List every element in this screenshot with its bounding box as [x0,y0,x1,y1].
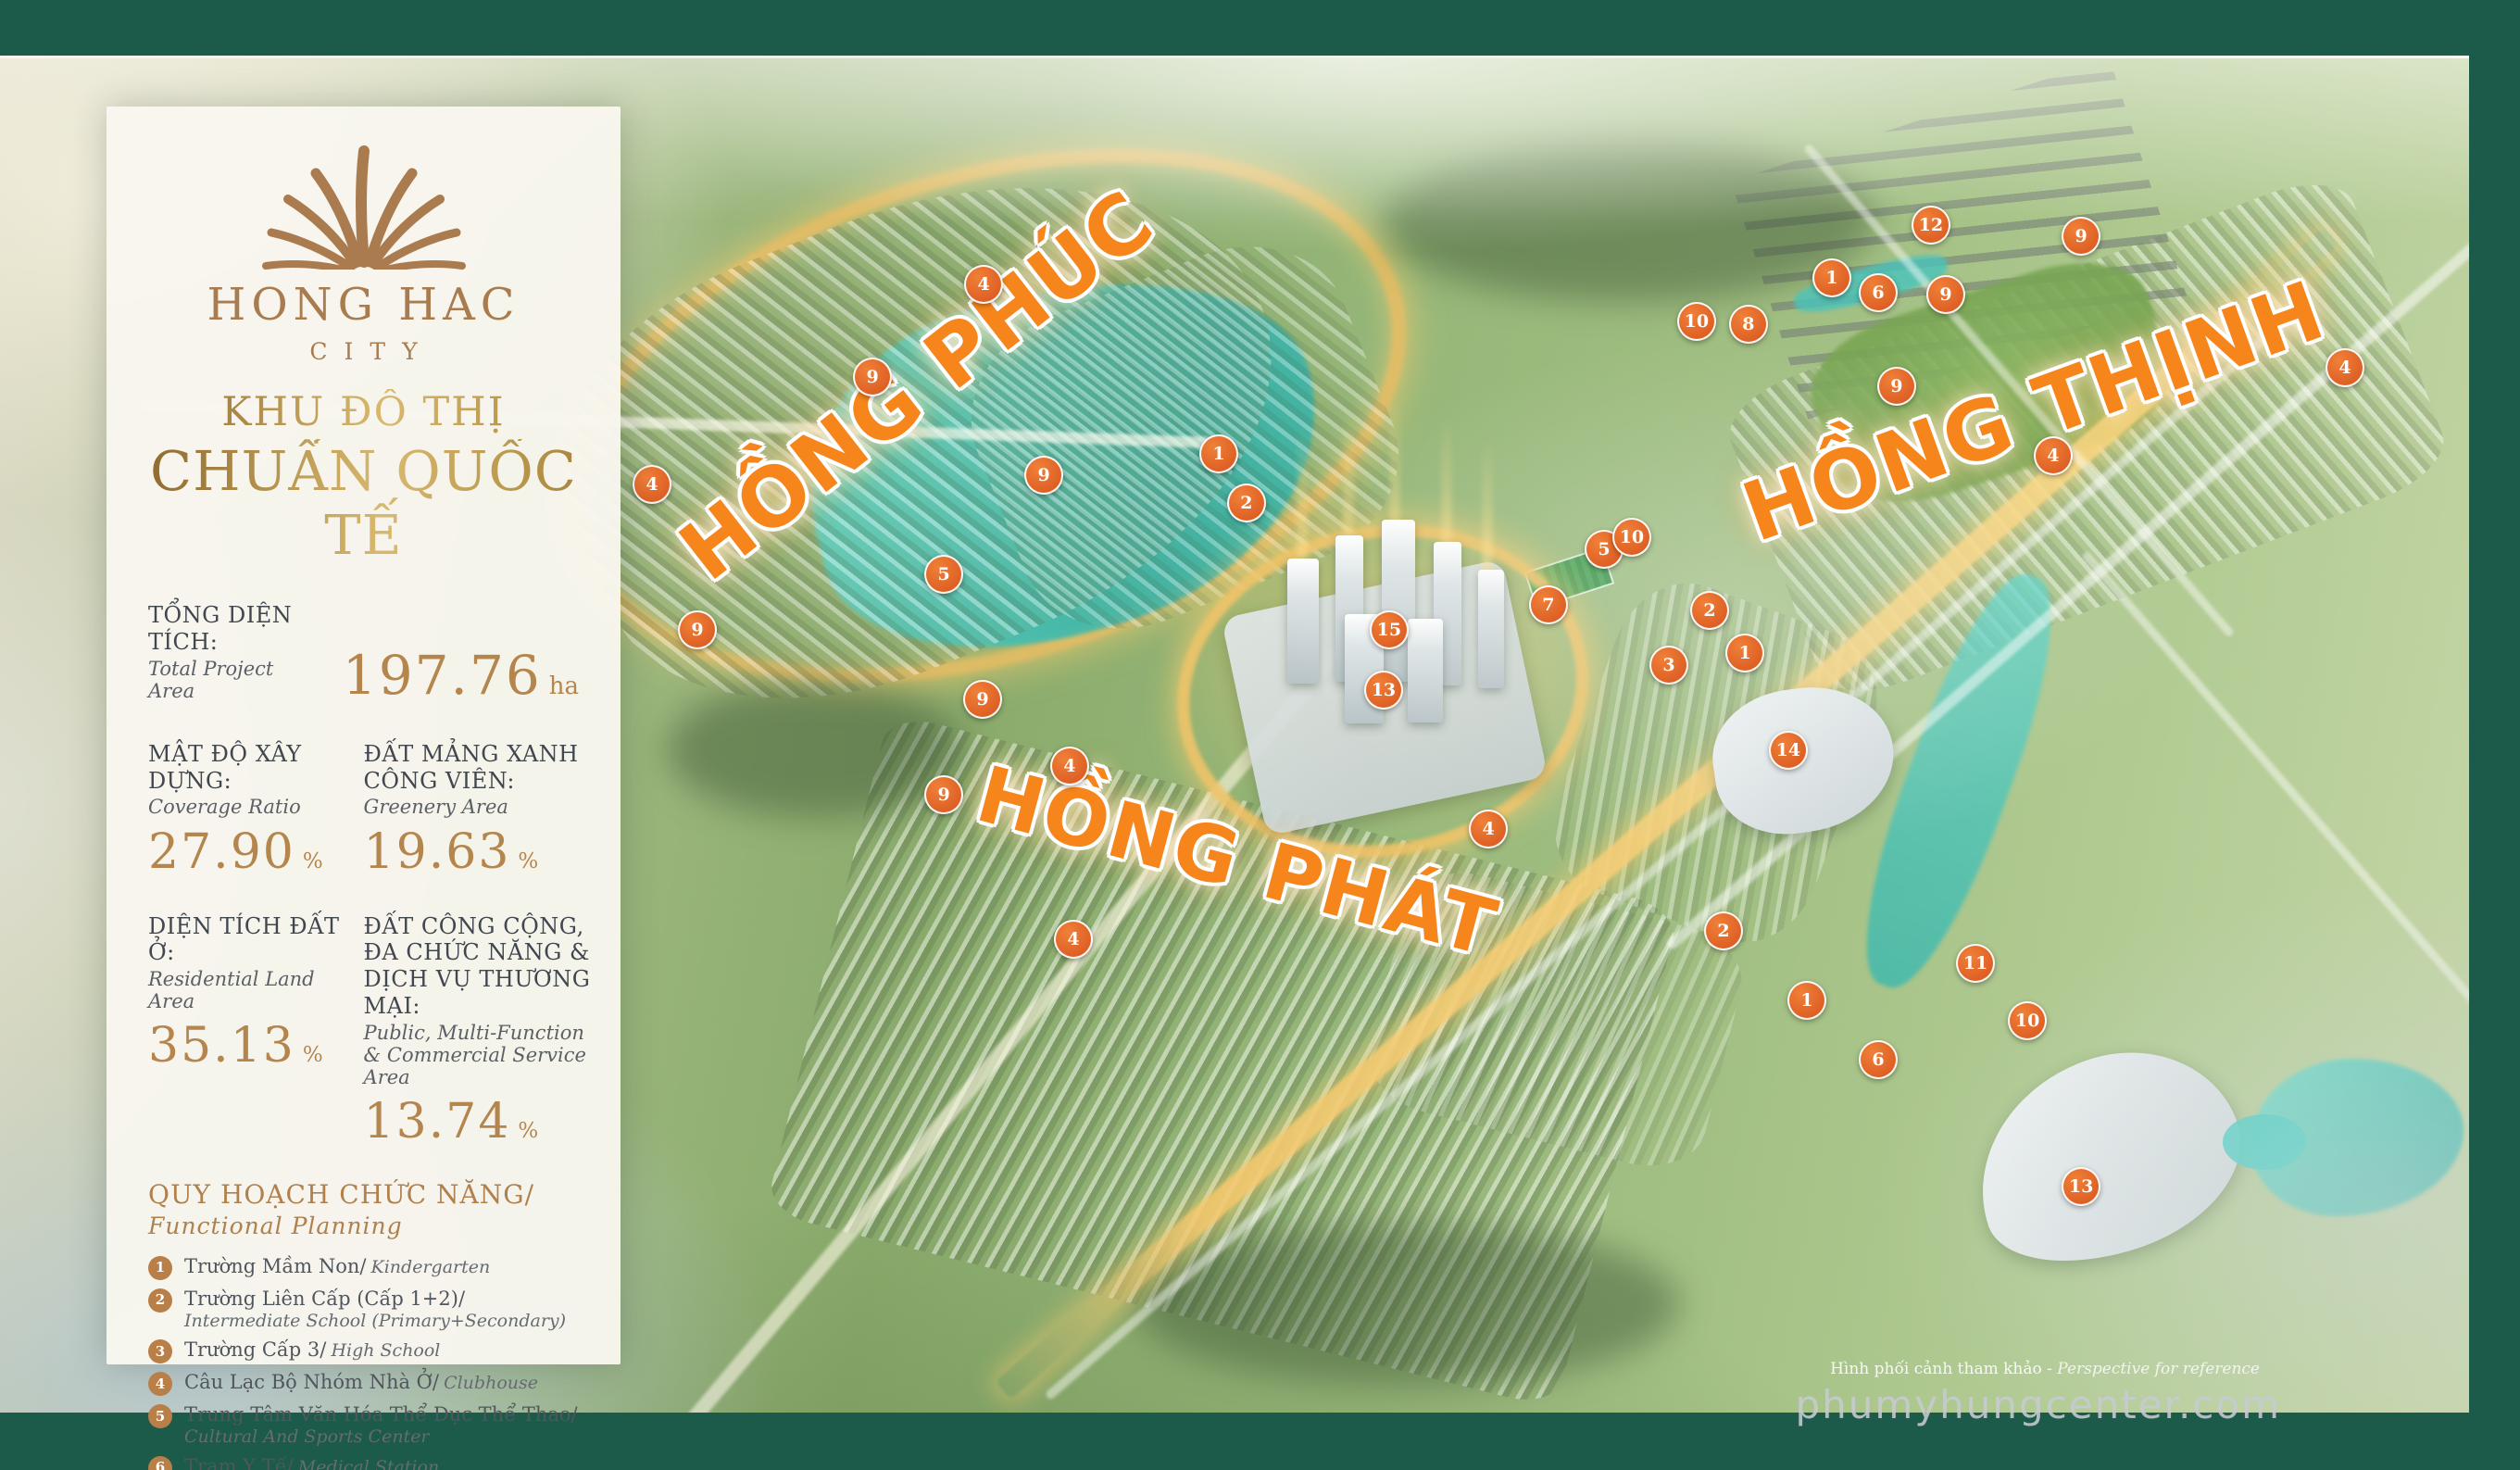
stat-value: 27.90 [148,828,295,876]
legend-label-vi: Câu Lạc Bộ Nhóm Nhà Ở/ [184,1371,439,1393]
stat-label: ĐẤT CÔNG CỘNG, ĐA CHỨC NĂNG & DỊCH VỤ TH… [364,913,592,1020]
legend-label-en: Kindergarten [371,1257,491,1277]
stat-cell: ĐẤT CÔNG CỘNG, ĐA CHỨC NĂNG & DỊCH VỤ TH… [364,913,592,1147]
stat-cell: ĐẤT MẢNG XANH CÔNG VIÊN: Greenery Area 1… [364,741,592,876]
legend-number-badge: 4 [148,1372,172,1396]
legend-heading-en: Functional Planning [148,1212,403,1239]
legend-item: 3 Trường Cấp 3/ High School [148,1338,579,1363]
brand-block: HONG HAC CITY [148,140,579,365]
stat-value: 13.74 [364,1098,511,1146]
reference-note-en: Perspective for reference [2052,1360,2260,1378]
project-tagline-line2: CHUẨN QUỐC TẾ [148,439,579,567]
stat-label: ĐẤT MẢNG XANH CÔNG VIÊN: [364,741,592,795]
legend-heading: QUY HOẠCH CHỨC NĂNG/ Functional Planning [148,1179,579,1240]
stat-unit: % [518,1119,538,1143]
total-area-stat: TỔNG DIỆN TÍCH: Total Project Area 197.7… [148,602,579,702]
legend-label-vi: Trung Tâm Văn Hóa Thể Dục Thể Thao/ [184,1403,578,1426]
legend-label-en: Intermediate School (Primary+Secondary) [184,1311,566,1331]
legend-item: 5 Trung Tâm Văn Hóa Thể Dục Thể Thao/ Cu… [148,1403,579,1447]
stat-label: DIỆN TÍCH ĐẤT Ở: [148,913,351,967]
legend-label-en: High School [331,1340,440,1361]
legend-number-badge: 5 [148,1404,172,1428]
stats-grid: MẬT ĐỘ XÂY DỰNG: Coverage Ratio 27.90 % … [148,741,579,1146]
legend-number-badge: 2 [148,1288,172,1313]
stat-sublabel: Greenery Area [364,796,592,818]
project-tagline-line1: KHU ĐÔ THỊ [148,389,579,435]
stat-label: MẬT ĐỘ XÂY DỰNG: [148,741,351,795]
total-area-sublabel: Total Project Area [148,658,326,702]
stat-unit: % [303,1043,323,1067]
legend-number-badge: 3 [148,1339,172,1363]
stat-sublabel: Public, Multi-Function & Commercial Serv… [364,1022,592,1088]
brand-subtitle: CITY [148,338,579,365]
masterplan-poster: HỒNG PHÚCHỒNG THỊNHHỒNG PHÁT 49954994941… [0,0,2520,1470]
legend-label-vi: Trường Cấp 3/ [184,1338,326,1361]
legend-item: 4 Câu Lạc Bộ Nhóm Nhà Ở/ Clubhouse [148,1371,579,1396]
project-info-panel: HONG HAC CITY KHU ĐÔ THỊ CHUẨN QUỐC TẾ T… [107,107,621,1364]
legend-label-en: Medical Station [298,1457,439,1470]
legend-heading-vi: QUY HOẠCH CHỨC NĂNG/ [148,1179,534,1210]
brand-name: HONG HAC [148,279,579,331]
legend-label-vi: Trường Liên Cấp (Cấp 1+2)/ [184,1288,465,1310]
watermark-url: phumyhungcenter.com [1795,1382,2281,1427]
reference-note-vi: Hình phối cảnh tham khảo - [1830,1360,2052,1378]
legend-list: 1 Trường Mầm Non/ Kindergarten 2 Trường … [148,1255,579,1470]
stat-cell: DIỆN TÍCH ĐẤT Ở: Residential Land Area 3… [148,913,351,1147]
total-area-value: 197.76 [343,648,542,702]
total-area-unit: ha [549,672,579,700]
legend-label-en: Clubhouse [444,1373,538,1393]
legend-label-vi: Trạm Y Tế/ [184,1455,294,1470]
legend-label-vi: Trường Mầm Non/ [184,1255,366,1277]
legend-number-badge: 1 [148,1256,172,1280]
legend-label-en: Cultural And Sports Center [184,1426,430,1447]
lotus-logo-icon [257,140,470,270]
legend-number-badge: 6 [148,1456,172,1470]
legend-item: 2 Trường Liên Cấp (Cấp 1+2)/ Intermediat… [148,1288,579,1331]
legend-item: 1 Trường Mầm Non/ Kindergarten [148,1255,579,1280]
stat-sublabel: Coverage Ratio [148,796,351,818]
stat-cell: MẬT ĐỘ XÂY DỰNG: Coverage Ratio 27.90 % [148,741,351,876]
stat-value: 19.63 [364,828,511,876]
total-area-label: TỔNG DIỆN TÍCH: [148,602,326,656]
legend-item: 6 Trạm Y Tế/ Medical Station [148,1455,579,1470]
stat-value: 35.13 [148,1022,295,1070]
stat-sublabel: Residential Land Area [148,968,351,1012]
stat-unit: % [518,849,538,873]
reference-note: Hình phối cảnh tham khảo - Perspective f… [1830,1360,2260,1378]
stat-unit: % [303,849,323,873]
